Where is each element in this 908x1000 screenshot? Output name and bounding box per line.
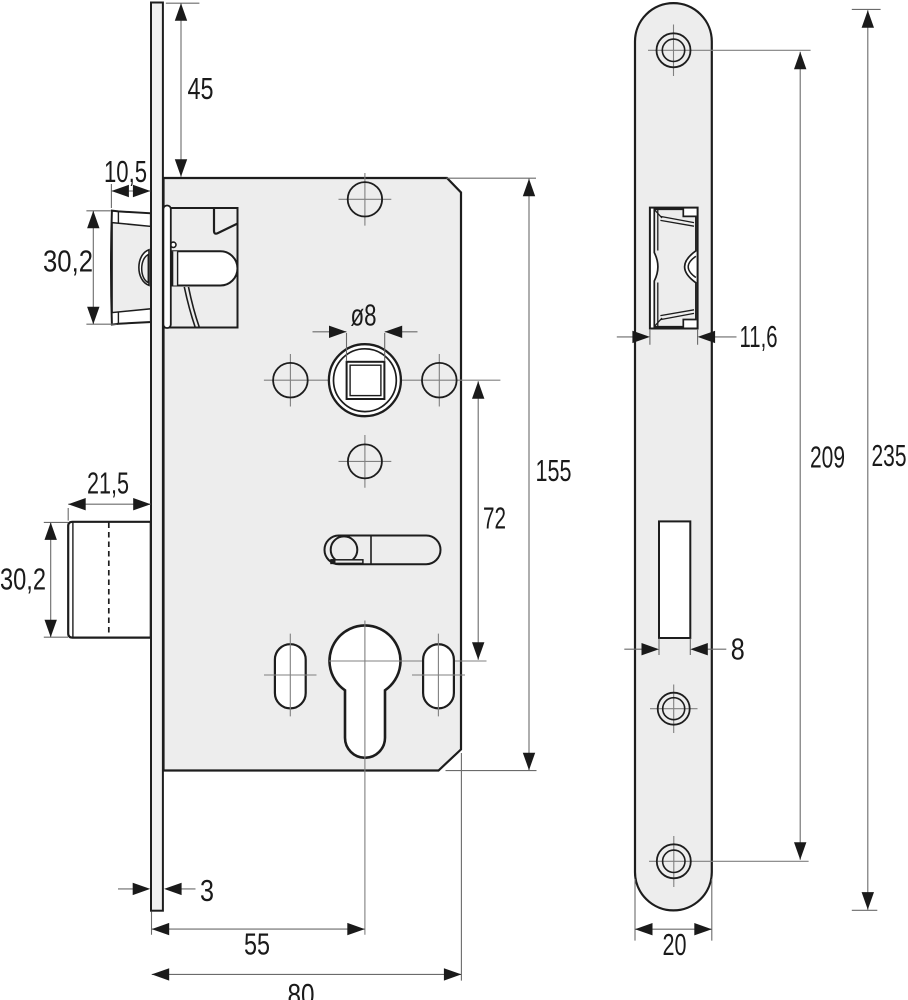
svg-text:30,2: 30,2 — [43, 244, 93, 279]
svg-text:30,2: 30,2 — [0, 562, 46, 597]
svg-text:72: 72 — [483, 501, 506, 536]
svg-text:80: 80 — [288, 977, 315, 1000]
svg-text:8: 8 — [731, 632, 745, 667]
svg-text:155: 155 — [536, 453, 572, 488]
svg-text:21,5: 21,5 — [87, 466, 129, 501]
svg-text:ø8: ø8 — [351, 298, 377, 333]
svg-text:55: 55 — [244, 927, 270, 962]
svg-text:3: 3 — [200, 873, 214, 908]
svg-text:10,5: 10,5 — [104, 154, 147, 189]
svg-text:235: 235 — [872, 438, 907, 473]
svg-text:45: 45 — [188, 71, 214, 106]
svg-text:11,6: 11,6 — [740, 319, 778, 354]
svg-text:20: 20 — [663, 927, 687, 962]
svg-text:209: 209 — [810, 440, 845, 475]
